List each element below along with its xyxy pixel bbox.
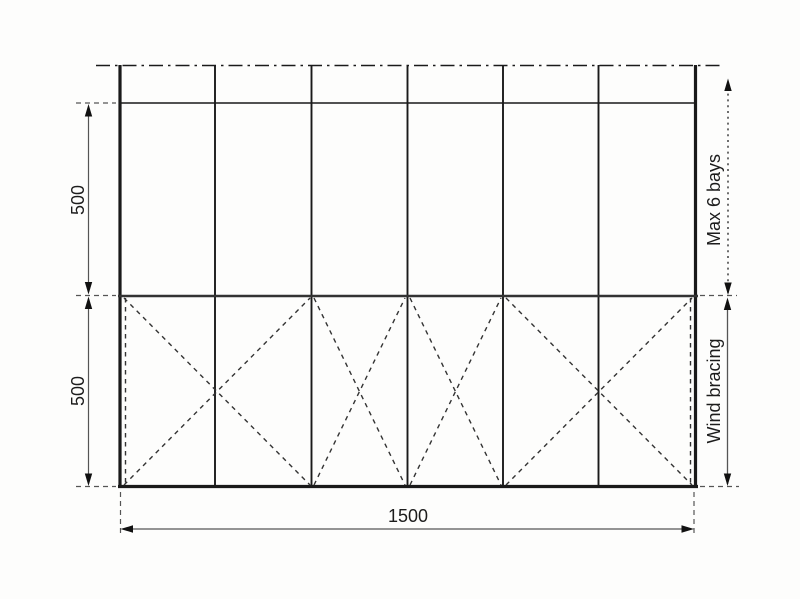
dimension-left-group: 500 500 — [68, 103, 116, 487]
arrow-down-icon — [85, 474, 92, 487]
dimension-width-label: 1500 — [388, 506, 428, 526]
frame-structure — [118, 65, 698, 488]
dimension-upper-label: 500 — [68, 185, 88, 215]
wind-bracing-label: Wind bracing — [704, 338, 724, 443]
arrow-up-icon — [85, 297, 92, 310]
dimension-wind-bracing-group: Wind bracing — [700, 296, 739, 487]
arrow-right-icon — [682, 525, 695, 532]
arrow-up-icon — [724, 79, 731, 92]
dimension-max-bays-group: Max 6 bays — [704, 79, 732, 296]
arrow-left-icon — [121, 525, 134, 532]
structural-diagram: 500 500 1500 Max 6 bays — [0, 0, 800, 599]
max-bays-label: Max 6 bays — [704, 154, 724, 246]
dimension-lower-label: 500 — [68, 376, 88, 406]
arrow-down-icon — [85, 282, 92, 295]
drawing-canvas: 500 500 1500 Max 6 bays — [0, 0, 800, 599]
arrow-up-icon — [85, 104, 92, 117]
arrow-down-icon — [724, 474, 731, 487]
arrow-up-icon — [724, 298, 731, 311]
dimension-bottom-group: 1500 — [121, 492, 695, 533]
arrow-down-icon — [724, 283, 731, 296]
